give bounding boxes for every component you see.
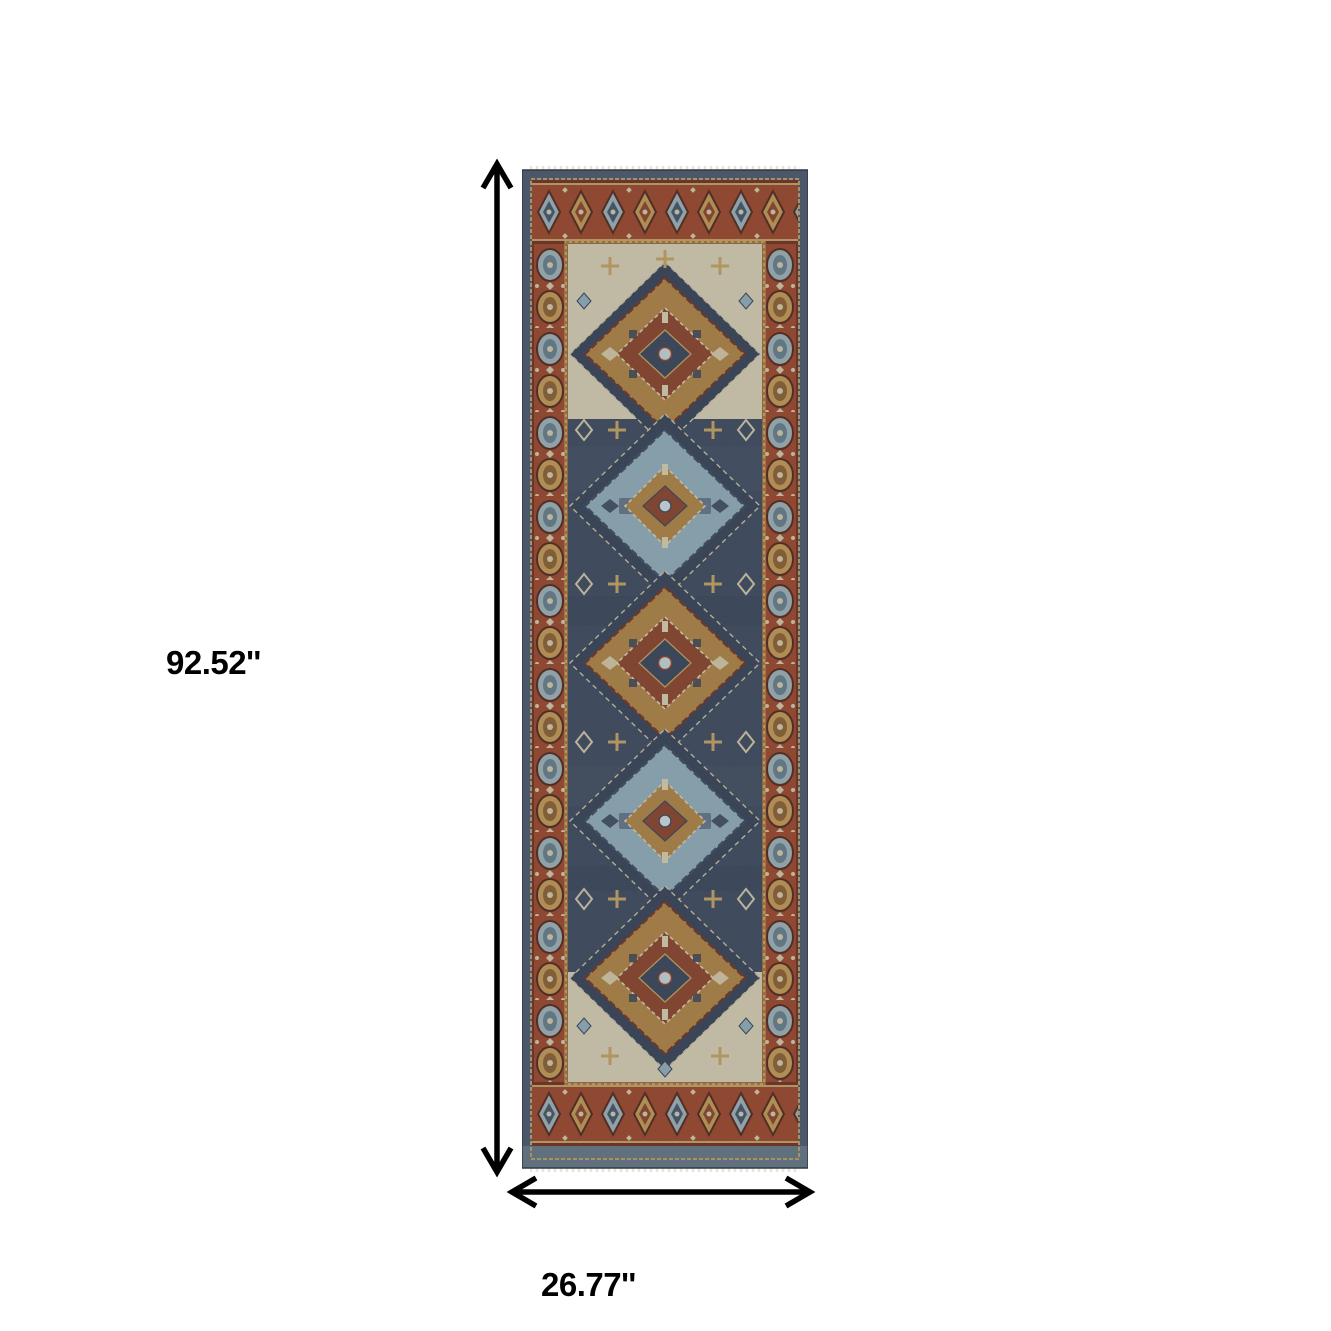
width-dimension-label: 26.77'' [541,1266,636,1304]
page-background: { "page": { "background": "#ffffff" }, "… [0,0,1331,1331]
horizontal-double-arrow [500,1174,820,1210]
rug-texture-light [522,170,808,1168]
rug-illustration [522,166,808,1172]
rug-product-image [522,166,808,1172]
vertical-double-arrow [477,154,517,1180]
height-dimension-label: 92.52'' [166,644,261,682]
